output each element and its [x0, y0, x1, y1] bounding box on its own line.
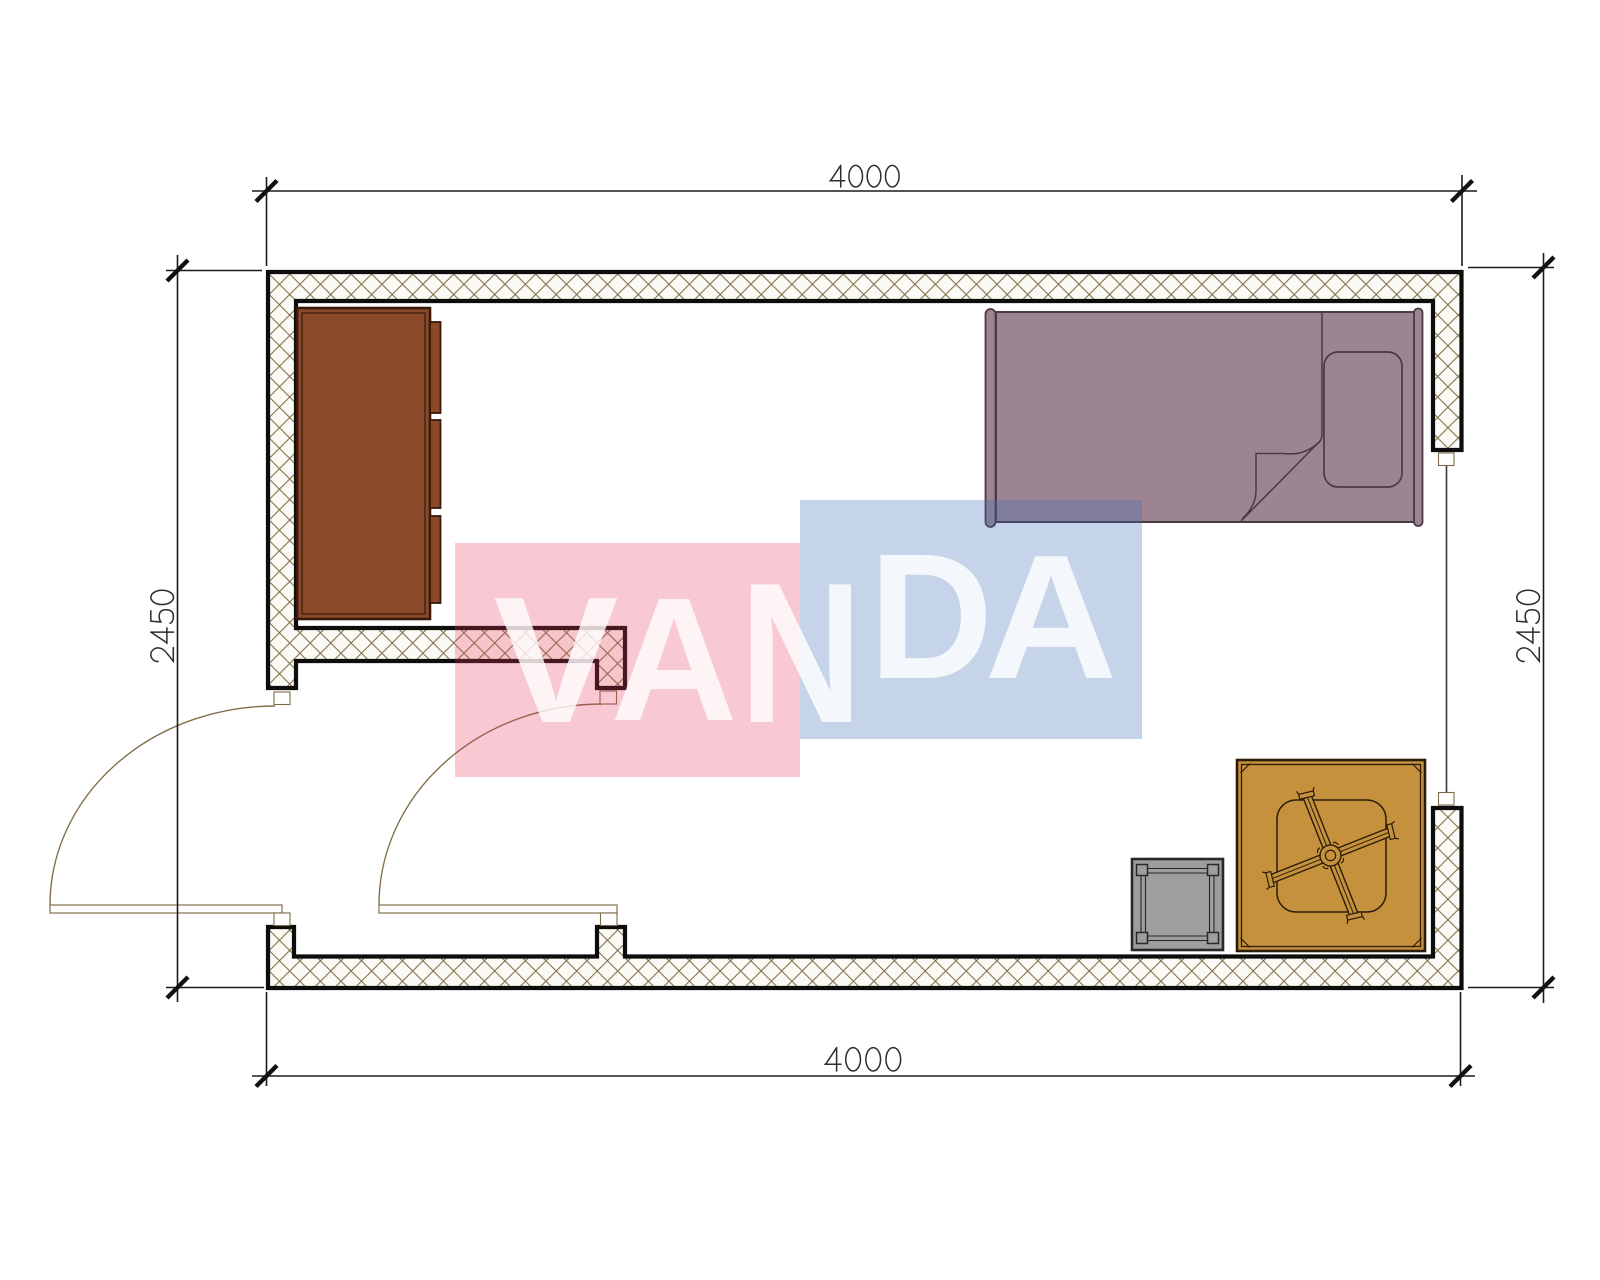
svg-text:A: A [985, 518, 1118, 716]
svg-text:D: D [869, 516, 993, 716]
svg-text:A: A [610, 562, 737, 758]
svg-text:V: V [494, 560, 619, 761]
svg-text:N: N [740, 542, 863, 765]
